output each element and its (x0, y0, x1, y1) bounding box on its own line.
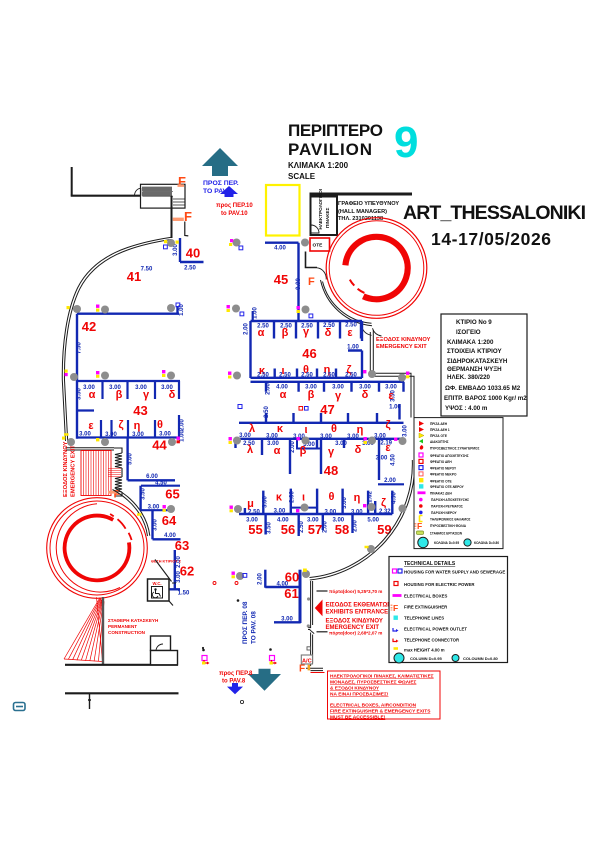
svg-text:40: 40 (186, 246, 200, 261)
svg-text:2.50: 2.50 (299, 521, 305, 533)
svg-text:ΣΤΑΘΜΟΣ ΕΡΓΑΣΙΩΝ: ΣΤΑΘΜΟΣ ΕΡΓΑΣΙΩΝ (430, 532, 463, 536)
svg-text:57: 57 (308, 522, 322, 537)
svg-text:3.00: 3.00 (263, 496, 269, 508)
svg-text:ΣΤΟΙΧΕΙΑ ΚΤΙΡΙΟΥ: ΣΤΟΙΧΕΙΑ ΚΤΙΡΙΟΥ (447, 348, 503, 355)
svg-text:2.50: 2.50 (301, 373, 313, 379)
svg-text:1.00: 1.00 (347, 345, 359, 351)
svg-text:ΤΗΛΕΦΩΝΙΚΟΣ ΘΑΛΑΜΟΣ: ΤΗΛΕΦΩΝΙΚΟΣ ΘΑΛΑΜΟΣ (430, 517, 471, 521)
svg-text:TECHNICAL DETAILS: TECHNICAL DETAILS (404, 561, 456, 567)
svg-text:58: 58 (335, 522, 349, 537)
svg-text:EMERGENCY EXIT: EMERGENCY EXIT (376, 344, 427, 350)
svg-text:45: 45 (274, 272, 288, 287)
svg-text:ΣΙΔΗΡΟΚΑΤΑΣΚΕΥΗ: ΣΙΔΗΡΟΚΑΤΑΣΚΕΥΗ (447, 358, 508, 365)
svg-text:TELEPHONE CONNECTOR: TELEPHONE CONNECTOR (404, 638, 460, 643)
svg-text:2.00: 2.00 (258, 573, 264, 585)
svg-text:2.50: 2.50 (345, 373, 357, 379)
svg-text:θ: θ (329, 491, 335, 503)
svg-text:κ: κ (277, 423, 284, 435)
svg-text:3.00: 3.00 (342, 497, 348, 509)
svg-text:ΠΡΙΖΑ ΟΤΕ: ΠΡΙΖΑ ΟΤΕ (430, 434, 447, 438)
svg-text:ΤΟ PAV. 08: ΤΟ PAV. 08 (251, 611, 258, 644)
svg-text:ΚΤΙΡΙΟ Νο 9: ΚΤΙΡΙΟ Νο 9 (456, 319, 492, 326)
svg-text:ΔΙΑΚΟΠΤΗΣ: ΔΙΑΚΟΠΤΗΣ (430, 440, 449, 444)
svg-text:δ: δ (169, 389, 176, 401)
svg-text:2.50: 2.50 (248, 510, 260, 516)
svg-text:ΣΤΑΘΕΡΗ ΚΑΤΑΣΚΕΥΗ: ΣΤΑΘΕΡΗ ΚΑΤΑΣΚΕΥΗ (108, 618, 159, 623)
svg-text:4.50: 4.50 (392, 492, 398, 504)
svg-text:δ: δ (362, 389, 369, 401)
svg-text:2.50: 2.50 (257, 373, 269, 379)
svg-text:γ: γ (303, 326, 310, 338)
svg-text:CONSTRUCTION: CONSTRUCTION (108, 630, 146, 635)
svg-text:ΠΡΟΣ ΠΕΡ.: ΠΡΟΣ ΠΕΡ. (203, 180, 239, 187)
svg-text:2.50: 2.50 (279, 373, 291, 379)
svg-text:ΠΕΡΙΠΤΕΡΟ: ΠΕΡΙΠΤΕΡΟ (288, 121, 383, 140)
svg-text:ELECTRICAL POWER OUTLET: ELECTRICAL POWER OUTLET (404, 627, 467, 632)
svg-text:F: F (308, 276, 315, 288)
svg-text:ΗΛΕΚ. 380/220: ΗΛΕΚ. 380/220 (447, 374, 491, 381)
svg-text:ε: ε (347, 327, 353, 339)
svg-text:β: β (300, 445, 307, 457)
svg-text:7.50: 7.50 (141, 267, 153, 273)
svg-text:ε: ε (88, 420, 94, 432)
svg-text:3.50: 3.50 (141, 488, 147, 500)
svg-text:ELECTRICAL BOXES: ELECTRICAL BOXES (404, 594, 448, 599)
svg-text:1.00: 1.00 (253, 307, 259, 319)
svg-text:γ: γ (328, 446, 335, 458)
svg-text:α: α (274, 445, 281, 457)
svg-text:ζ: ζ (118, 419, 123, 431)
svg-text:2.00: 2.00 (384, 478, 396, 484)
svg-text:ΠΡΟΣ ΠΕΡ. 08: ΠΡΟΣ ΠΕΡ. 08 (242, 601, 249, 644)
svg-text:55: 55 (248, 522, 262, 537)
svg-text:1.50: 1.50 (178, 591, 190, 597)
svg-text:48: 48 (324, 463, 338, 478)
svg-text:α: α (89, 389, 96, 401)
svg-text:ΘΕΡΜΑΝΣΗ ΨΥΞΗ: ΘΕΡΜΑΝΣΗ ΨΥΞΗ (447, 366, 502, 373)
svg-text:ΓΡΑΦΕΙΟ ΥΠΕΥΘΥΝΟΥ: ΓΡΑΦΕΙΟ ΥΠΕΥΘΥΝΟΥ (338, 201, 399, 207)
svg-text:42: 42 (82, 319, 96, 334)
svg-text:ΚΛΙΜΑΚΑ 1:200: ΚΛΙΜΑΚΑ 1:200 (288, 161, 349, 170)
svg-text:2.00: 2.00 (290, 491, 296, 503)
svg-text:δ: δ (325, 327, 332, 339)
svg-text:max HEIGHT 4.00 m: max HEIGHT 4.00 m (404, 648, 445, 653)
svg-text:ΗΛΕΚΤΡΟΛΟΓΙΚΟΙ ΠΙΝΑΚΕΣ, ΚΛΙΜΑΤ: ΗΛΕΚΤΡΟΛΟΓΙΚΟΙ ΠΙΝΑΚΕΣ, ΚΛΙΜΑΤΙΣΤΙΚΕΣ (330, 674, 434, 680)
svg-text:ΠΙΝΑΚΑΣ ΔΕΗ: ΠΙΝΑΚΑΣ ΔΕΗ (430, 492, 452, 496)
svg-text:3.00: 3.00 (335, 441, 347, 447)
svg-text:ΚΟΛΩΝΑ D=0.95: ΚΟΛΩΝΑ D=0.95 (434, 541, 459, 545)
svg-text:ΕΙΣΟΔΟΣ ΕΚΘΕΜΑΤΩΝ: ΕΙΣΟΔΟΣ ΕΚΘΕΜΑΤΩΝ (326, 603, 392, 609)
svg-text:61: 61 (284, 586, 298, 601)
svg-text:ΚΛΙΜΑΚΑ 1:200: ΚΛΙΜΑΚΑ 1:200 (447, 339, 494, 346)
svg-text:ΚΟΛΩΝΑ D=0.80: ΚΟΛΩΝΑ D=0.80 (474, 541, 499, 545)
svg-text:ε: ε (385, 442, 391, 454)
svg-text:ΠΑΡΟΧΗ ΝΕΡΟΥ: ΠΑΡΟΧΗ ΝΕΡΟΥ (431, 511, 457, 515)
svg-text:43: 43 (133, 403, 147, 418)
svg-text:EXHIBITS ENTRANCE: EXHIBITS ENTRANCE (326, 610, 389, 616)
svg-text:1.00: 1.00 (180, 430, 186, 442)
svg-text:γ: γ (335, 390, 342, 402)
svg-text:ΥΨΟΣ : 4.00 m: ΥΨΟΣ : 4.00 m (445, 405, 488, 412)
svg-text:EMERGENCY EXIT: EMERGENCY EXIT (71, 445, 77, 497)
svg-text:3.00: 3.00 (105, 432, 117, 438)
svg-text:ζ: ζ (385, 419, 390, 431)
svg-text:59: 59 (377, 522, 391, 537)
svg-text:3.00: 3.00 (281, 617, 293, 623)
svg-text:46: 46 (302, 346, 316, 361)
svg-text:α: α (258, 327, 265, 339)
svg-text:θ: θ (157, 419, 163, 431)
svg-text:3.50: 3.50 (266, 522, 272, 534)
svg-text:2.00: 2.00 (323, 521, 329, 533)
svg-text:3.00: 3.00 (79, 432, 91, 438)
svg-text:ι: ι (302, 492, 305, 504)
svg-text:ΠΥΡΟΣΒΕΣΤΙΚΗ ΦΩΛΙΑ: ΠΥΡΟΣΒΕΣΤΙΚΗ ΦΩΛΙΑ (430, 524, 467, 528)
svg-text:5.00: 5.00 (128, 453, 134, 465)
svg-text:63: 63 (175, 538, 189, 553)
svg-text:6.00: 6.00 (146, 474, 158, 480)
svg-text:2.00: 2.00 (290, 441, 296, 453)
svg-text:MUST BE ACCESSIBLE!: MUST BE ACCESSIBLE! (330, 715, 386, 721)
svg-text:προς ΠΕΡ.8: προς ΠΕΡ.8 (219, 671, 253, 677)
svg-text:56: 56 (281, 522, 295, 537)
svg-text:47: 47 (320, 402, 334, 417)
svg-text:to PAV.10: to PAV.10 (221, 211, 248, 217)
svg-text:ΦΡΕΑΤΙΟ ΝΕΡΟΥ: ΦΡΕΑΤΙΟ ΝΕΡΟΥ (430, 466, 457, 470)
svg-text:PAVILION: PAVILION (288, 140, 372, 159)
svg-text:4.00: 4.00 (274, 246, 286, 252)
svg-text:COLUMN D=0.95: COLUMN D=0.95 (410, 656, 442, 661)
svg-text:κ: κ (276, 492, 283, 504)
svg-text:ΦΡΕΑΤΙΟ ΟΤΕ-ΝΕΡΟΥ: ΦΡΕΑΤΙΟ ΟΤΕ-ΝΕΡΟΥ (430, 485, 465, 489)
svg-text:2.00: 2.00 (180, 419, 186, 431)
svg-text:62: 62 (180, 564, 194, 579)
svg-text:ΕΞΟΔΟΣ ΚΙΝΔΥΝΟΥ: ΕΞΟΔΟΣ ΚΙΝΔΥΝΟΥ (376, 337, 431, 343)
svg-text:F: F (417, 521, 422, 531)
svg-text:ι: ι (304, 424, 307, 436)
svg-text:λ: λ (247, 444, 253, 456)
svg-text:ΦΡΕΑΤΙΟ ΝΕΚΡΟ: ΦΡΕΑΤΙΟ ΝΕΚΡΟ (430, 473, 457, 477)
svg-text:ΩΦ. ΕΜΒΑΔΟ 1033.65 Μ2: ΩΦ. ΕΜΒΑΔΟ 1033.65 Μ2 (445, 385, 521, 392)
svg-text:ΗΛΕΚΤΡΟΛΟΓΙΚΟΙ: ΗΛΕΚΤΡΟΛΟΓΙΚΟΙ (318, 189, 323, 230)
svg-text:3.00: 3.00 (325, 510, 337, 516)
svg-text:ΕΞΟΔΟΣ ΚΙΝΔΥΝΟΥ: ΕΞΟΔΟΣ ΚΙΝΔΥΝΟΥ (63, 441, 69, 497)
svg-text:41: 41 (127, 269, 141, 284)
svg-text:η: η (354, 492, 361, 504)
svg-text:W.C.: W.C. (153, 581, 162, 586)
svg-text:ΕΞΟΔΟΣ ΚΙΝΔΥΝΟΥ: ΕΞΟΔΟΣ ΚΙΝΔΥΝΟΥ (326, 619, 383, 625)
svg-text:3.00: 3.00 (274, 509, 286, 515)
svg-text:PERMANENT: PERMANENT (108, 624, 137, 629)
svg-text:SCALE: SCALE (288, 172, 316, 181)
svg-text:η: η (134, 420, 141, 432)
svg-text:64: 64 (162, 513, 177, 528)
svg-text:ΦΡΕΑΤΙΟ ΑΠΟΧΕΤΕΥΣΗΣ: ΦΡΕΑΤΙΟ ΑΠΟΧΕΤΕΥΣΗΣ (430, 454, 469, 458)
svg-text:ζ: ζ (381, 497, 386, 509)
svg-text:2.00: 2.00 (266, 383, 272, 395)
svg-text:3.00: 3.00 (132, 432, 144, 438)
svg-text:HOUSING FOR ELECTRIC POWER: HOUSING FOR ELECTRIC POWER (404, 582, 475, 587)
svg-text:F: F (393, 603, 398, 613)
svg-text:ΦΡΕΑΤΙΟ ΟΤΕ: ΦΡΕΑΤΙΟ ΟΤΕ (430, 479, 452, 483)
svg-text:65: 65 (165, 487, 179, 502)
svg-text:1.00: 1.00 (389, 405, 401, 411)
svg-text:FIRE EXTINGUISHER & EMERGENCY: FIRE EXTINGUISHER & EMERGENCY EXITS (330, 709, 431, 715)
svg-text:πόρτα(door) 2,68*2,07 m: πόρτα(door) 2,68*2,07 m (329, 631, 382, 636)
svg-text:ΕΠΙΤΡ. ΒΑΡΟΣ 1000 Kgr/ m2: ΕΠΙΤΡ. ΒΑΡΟΣ 1000 Kgr/ m2 (444, 395, 527, 402)
svg-text:ΝΑ ΕΙΝΑΙ ΠΡΟΣΒΑΣΙΜΕΣ!: ΝΑ ΕΙΝΑΙ ΠΡΟΣΒΑΣΙΜΕΣ! (330, 692, 389, 698)
svg-text:πόρτα(door) 5,25*3,70 m: πόρτα(door) 5,25*3,70 m (329, 589, 382, 594)
svg-text:3.00: 3.00 (376, 456, 388, 462)
svg-text:2.50: 2.50 (184, 266, 196, 272)
svg-text:1.62: 1.62 (368, 491, 374, 503)
svg-text:44: 44 (152, 438, 167, 453)
svg-text:ART_THESSALONIKI: ART_THESSALONIKI (403, 202, 586, 224)
svg-text:ΜΟΝΑΔΕΣ, ΠΥΡΟΣΒΕΣΤΙΚΕΣ ΦΩΛΙΕΣ: ΜΟΝΑΔΕΣ, ΠΥΡΟΣΒΕΣΤΙΚΕΣ ΦΩΛΙΕΣ (330, 680, 417, 686)
svg-text:ΠΡΙΖΑ ΔΕΗ 1: ΠΡΙΖΑ ΔΕΗ 1 (430, 428, 450, 432)
svg-text:ΟΤΕ: ΟΤΕ (313, 243, 324, 249)
svg-text:14-17/05/2026: 14-17/05/2026 (431, 229, 551, 249)
svg-text:HOUSING FOR WATER SUPPLY AND S: HOUSING FOR WATER SUPPLY AND SEWERAGE (404, 570, 505, 575)
svg-text:3.50: 3.50 (77, 388, 83, 400)
svg-text:β: β (282, 327, 289, 339)
svg-text:2.32: 2.32 (379, 509, 391, 515)
svg-text:ΠΥΡΟΣΒΕΣΤΙΚΟΣ ΣΥΝΑΓΕΡΜΟΣ: ΠΥΡΟΣΒΕΣΤΙΚΟΣ ΣΥΝΑΓΕΡΜΟΣ (430, 446, 479, 450)
svg-text:COLOUMN D=0.80: COLOUMN D=0.80 (463, 656, 499, 661)
svg-text:2.00: 2.00 (244, 323, 250, 335)
svg-text:3.00: 3.00 (153, 519, 159, 531)
svg-text:ΙΣΟΓΕΙΟ: ΙΣΟΓΕΙΟ (456, 329, 481, 336)
svg-text:4.50: 4.50 (391, 454, 397, 466)
svg-text:& ΕΞΟΔΟΙ ΚΙΝΔΥΝΟΥ: & ΕΞΟΔΟΙ ΚΙΝΔΥΝΟΥ (330, 686, 380, 692)
svg-text:3.00: 3.00 (403, 425, 409, 437)
svg-text:ΠΑΡΟΧΗ ΑΠΟΧΕΤΕΥΣΗΣ: ΠΑΡΟΧΗ ΑΠΟΧΕΤΕΥΣΗΣ (431, 498, 469, 502)
svg-text:ΠΑΡΟΧΗ ΡΕΥΜΑΤΟΣ: ΠΑΡΟΧΗ ΡΕΥΜΑΤΟΣ (431, 504, 463, 508)
svg-text:ΠΡΙΖΑ ΔΕΗ: ΠΡΙΖΑ ΔΕΗ (430, 422, 448, 426)
svg-text:γ: γ (143, 389, 150, 401)
svg-text:δ: δ (355, 444, 362, 456)
svg-text:προς ΠΕΡ.10: προς ΠΕΡ.10 (216, 203, 253, 209)
svg-text:7.50: 7.50 (77, 342, 83, 354)
svg-text:θ: θ (331, 423, 337, 435)
svg-text:2.00: 2.00 (353, 520, 359, 532)
svg-text:3.00: 3.00 (148, 505, 160, 511)
svg-text:FIRE EXTINGUISHER: FIRE EXTINGUISHER (404, 605, 448, 610)
svg-text:2.50: 2.50 (323, 373, 335, 379)
svg-text:F: F (299, 664, 305, 675)
svg-text:9: 9 (394, 118, 418, 167)
svg-text:ε: ε (388, 390, 394, 402)
svg-text:μ: μ (247, 498, 254, 510)
svg-text:4.00: 4.00 (276, 582, 288, 588)
svg-text:β: β (308, 389, 315, 401)
svg-text:TELEPHONE LINES: TELEPHONE LINES (404, 616, 444, 621)
svg-text:ΦΡΕΑΤΙΟ ΔΕΗ: ΦΡΕΑΤΙΟ ΔΕΗ (430, 460, 452, 464)
svg-text:α: α (280, 389, 287, 401)
svg-text:ΠΙΝΑΚΕΣ: ΠΙΝΑΚΕΣ (325, 207, 330, 228)
svg-text:β: β (116, 389, 123, 401)
svg-text:(HALL MANAGER): (HALL MANAGER) (338, 209, 387, 215)
svg-text:ELECTRICAL BOXES, AIRCONDITION: ELECTRICAL BOXES, AIRCONDITION (330, 703, 417, 709)
